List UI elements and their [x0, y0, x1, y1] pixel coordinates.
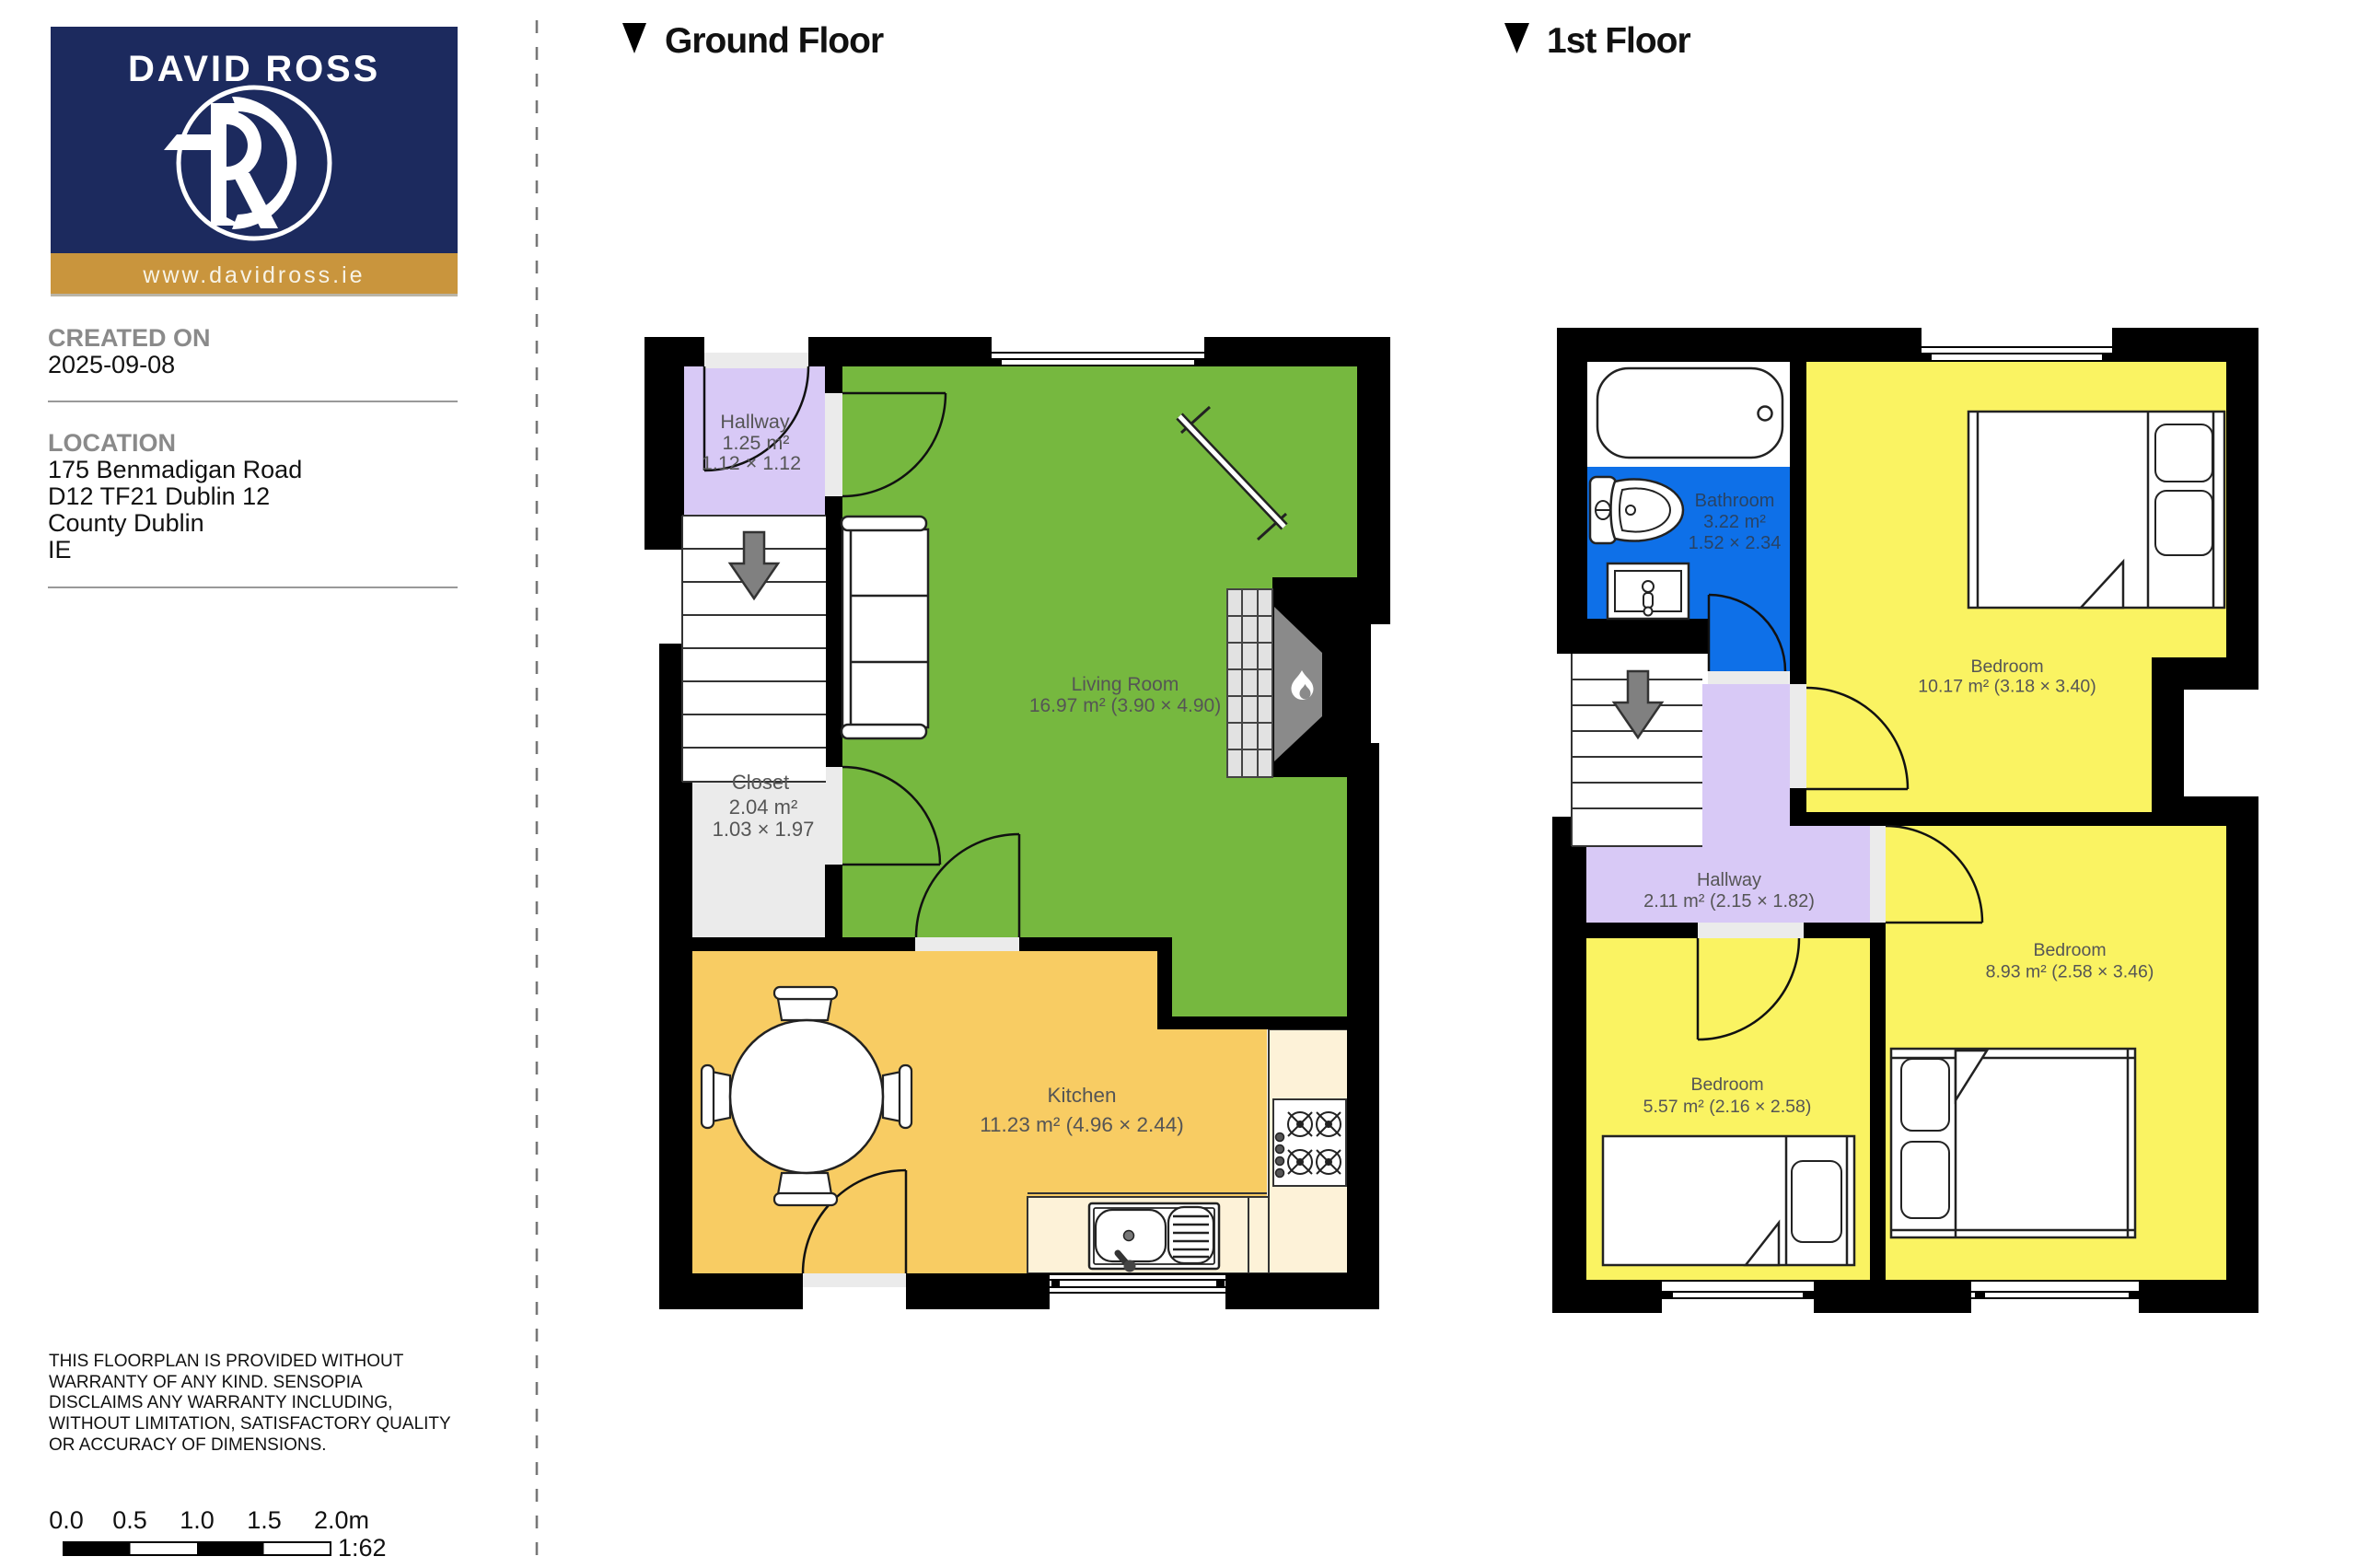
svg-text:Hallway: Hallway — [1697, 870, 1761, 890]
svg-text:1.12 × 1.12: 1.12 × 1.12 — [702, 452, 801, 474]
svg-text:Kitchen: Kitchen — [1047, 1084, 1116, 1107]
svg-text:WITHOUT LIMITATION, SATISFACTO: WITHOUT LIMITATION, SATISFACTORY QUALITY — [49, 1414, 451, 1434]
svg-text:WARRANTY OF ANY KIND. SENSOPIA: WARRANTY OF ANY KIND. SENSOPIA — [49, 1373, 363, 1392]
svg-text:CREATED ON: CREATED ON — [48, 324, 211, 352]
svg-text:IE: IE — [48, 536, 72, 563]
svg-text:175 Benmadigan Road: 175 Benmadigan Road — [48, 456, 302, 483]
svg-text:Hallway: Hallway — [720, 411, 790, 433]
svg-text:OR ACCURACY OF DIMENSIONS.: OR ACCURACY OF DIMENSIONS. — [49, 1435, 327, 1455]
svg-text:11.23 m² (4.96 × 2.44): 11.23 m² (4.96 × 2.44) — [980, 1113, 1184, 1136]
svg-text:Ground Floor: Ground Floor — [665, 21, 884, 61]
svg-text:D12 TF21 Dublin 12: D12 TF21 Dublin 12 — [48, 482, 270, 510]
svg-text:www.davidross.ie: www.davidross.ie — [142, 262, 365, 288]
svg-text:0.5: 0.5 — [112, 1506, 147, 1534]
svg-text:10.17 m² (3.18 × 3.40): 10.17 m² (3.18 × 3.40) — [1918, 677, 2096, 697]
svg-text:3.22 m²: 3.22 m² — [1703, 512, 1766, 532]
svg-text:Bedroom: Bedroom — [2033, 940, 2106, 960]
svg-text:County Dublin: County Dublin — [48, 509, 204, 537]
svg-text:1.0: 1.0 — [180, 1506, 215, 1534]
svg-text:THIS FLOORPLAN IS PROVIDED WIT: THIS FLOORPLAN IS PROVIDED WITHOUT — [49, 1352, 404, 1371]
svg-text:1:62: 1:62 — [338, 1534, 387, 1562]
svg-text:DAVID ROSS: DAVID ROSS — [128, 49, 380, 89]
svg-text:16.97 m² (3.90 × 4.90): 16.97 m² (3.90 × 4.90) — [1029, 695, 1221, 716]
svg-text:Bedroom: Bedroom — [1970, 656, 2043, 677]
svg-text:2.04 m²: 2.04 m² — [729, 796, 798, 819]
svg-text:1.52 × 2.34: 1.52 × 2.34 — [1689, 533, 1782, 553]
svg-text:5.57 m² (2.16 × 2.58): 5.57 m² (2.16 × 2.58) — [1643, 1097, 1812, 1117]
svg-text:2025-09-08: 2025-09-08 — [48, 351, 175, 378]
svg-text:2.0m: 2.0m — [314, 1506, 369, 1534]
svg-text:1st Floor: 1st Floor — [1547, 21, 1691, 61]
svg-text:0.0: 0.0 — [49, 1506, 84, 1534]
svg-text:1.03 × 1.97: 1.03 × 1.97 — [713, 818, 815, 841]
svg-text:Bathroom: Bathroom — [1695, 491, 1775, 511]
svg-text:LOCATION: LOCATION — [48, 429, 176, 457]
svg-text:Closet: Closet — [732, 771, 789, 794]
svg-text:Bedroom: Bedroom — [1690, 1074, 1763, 1095]
svg-text:1.5: 1.5 — [247, 1506, 282, 1534]
svg-text:2.11 m² (2.15 × 1.82): 2.11 m² (2.15 × 1.82) — [1643, 891, 1815, 912]
svg-text:Living Room: Living Room — [1072, 674, 1179, 695]
svg-text:DISCLAIMS ANY WARRANTY INCLUDI: DISCLAIMS ANY WARRANTY INCLUDING, — [49, 1393, 392, 1412]
svg-text:1.25 m²: 1.25 m² — [723, 432, 790, 454]
svg-text:8.93 m² (2.58 × 3.46): 8.93 m² (2.58 × 3.46) — [1986, 962, 2154, 982]
